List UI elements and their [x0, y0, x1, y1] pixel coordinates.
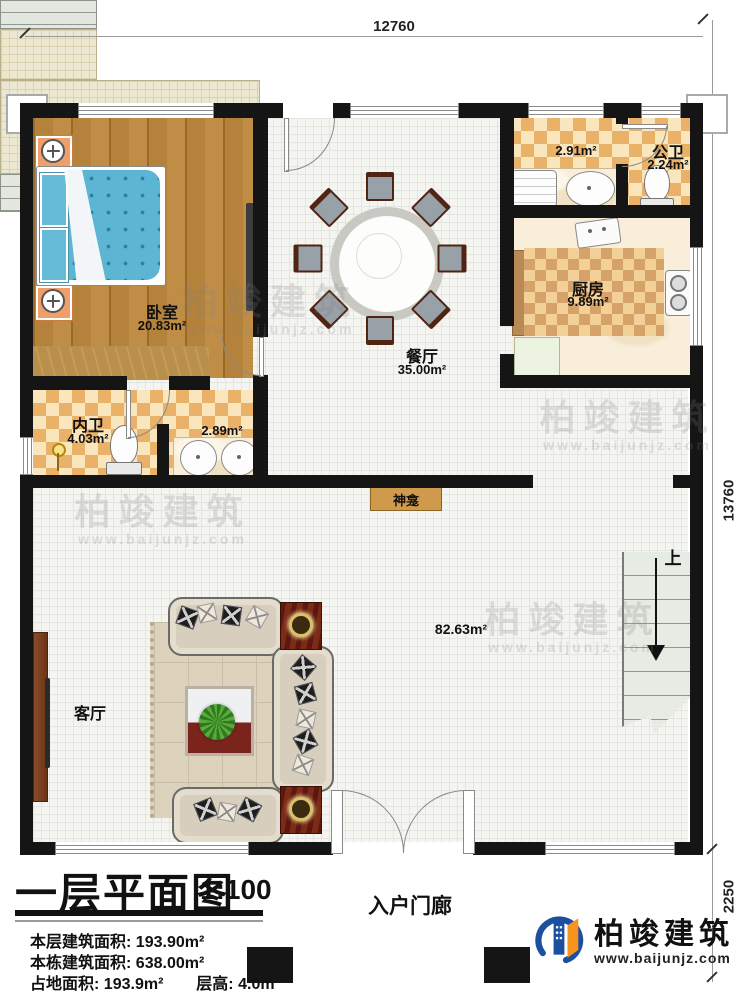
title-rule-thin: [15, 920, 263, 922]
dining-chair: [294, 245, 323, 273]
dining-table-inner: [356, 233, 402, 279]
stat-value: 193.9m²: [104, 976, 164, 993]
stairs-arrow-head: [647, 645, 665, 661]
burner: [670, 294, 687, 311]
sink-drain: [587, 186, 591, 190]
entry-porch-label: 入户门廊: [335, 890, 485, 920]
stairs-arrow-line: [655, 558, 657, 646]
lamp: [41, 139, 65, 163]
faucet: [602, 227, 606, 231]
drain-pipe: [57, 453, 59, 471]
brand-logo-text: 柏竣建筑 www.baijunjz.com: [594, 920, 734, 966]
brand-website: www.baijunjz.com: [594, 950, 734, 966]
window: [528, 103, 604, 118]
cushion: [295, 708, 316, 729]
medallion: [289, 613, 313, 637]
dim-line-right: [712, 20, 713, 982]
wardrobe: [33, 346, 210, 380]
wall-bedroom-right: [253, 118, 268, 337]
window: [545, 842, 675, 855]
dim-top-label: 12760: [362, 18, 426, 35]
title-rule-thick: [15, 910, 263, 916]
cushion: [221, 605, 242, 626]
window: [690, 247, 703, 346]
wall-kitchen-top: [500, 205, 690, 218]
burner: [670, 275, 687, 292]
wall-bedroom-right-lower: [253, 375, 268, 487]
dining-chair: [438, 245, 467, 273]
dining-area: 35.00m²: [388, 362, 456, 377]
medallion: [289, 797, 313, 821]
wall-kitchen-bottom: [500, 375, 690, 388]
window: [78, 103, 214, 118]
stairs-up-label: 上: [662, 544, 684, 569]
lamp: [41, 289, 65, 313]
wall-hall-top-stub: [673, 475, 690, 488]
dining-chair: [366, 316, 394, 345]
private-bath-area: 4.03m²: [58, 431, 118, 446]
living-label: 客厅: [66, 700, 114, 724]
wall-bedroom-bottom: [33, 376, 127, 390]
stat-footprint: 占地面积: 193.9m² 层高: 4.0m: [30, 970, 275, 994]
toilet-tank: [106, 462, 142, 475]
floorplan-page: { "plan": { "dimensions": { "top": "1276…: [0, 0, 750, 993]
window: [641, 103, 681, 118]
window: [350, 103, 459, 118]
window: [20, 437, 33, 475]
dim-right-label: 13760: [721, 472, 738, 530]
dining-chair: [366, 172, 394, 201]
fridge: [514, 337, 560, 377]
hall-area: 82.63m²: [428, 621, 494, 637]
wall-kitchen-left: [500, 218, 514, 326]
wall-laundry-left: [500, 118, 514, 208]
cushion: [196, 602, 217, 623]
vanity-area: 2.89m²: [194, 423, 250, 438]
wall-bath-divider: [157, 424, 169, 477]
porch-post: [484, 947, 530, 983]
brand-company: 柏竣建筑: [594, 920, 734, 950]
dim-line-top: [25, 36, 703, 37]
tv: [45, 678, 50, 768]
wall-pubbath-left: [616, 164, 628, 208]
door-gap: [283, 103, 333, 118]
stat-label: 占地面积:: [30, 976, 99, 993]
plan-scale: 1:100: [200, 874, 272, 906]
stat-label2: 层高:: [196, 976, 233, 993]
window: [55, 842, 249, 855]
cushion: [217, 802, 238, 823]
wall-exterior-right: [690, 103, 703, 855]
shrine-label: 神龛: [393, 490, 419, 509]
stat-value2: 4.0m: [238, 976, 274, 993]
dim-tick: [697, 13, 708, 24]
sink-drain: [196, 455, 200, 459]
wall-bedroom-bottom: [169, 376, 210, 390]
bed-pillow: [40, 228, 68, 282]
plant: [199, 704, 235, 740]
laundry-area: 2.91m²: [546, 143, 606, 158]
shrine: 神龛: [370, 487, 442, 511]
public-bath-area: 2.24m²: [640, 157, 696, 172]
kitchen-area: 9.89m²: [556, 294, 620, 309]
brand-logo-icon: [532, 912, 586, 973]
sink-drain: [237, 455, 241, 459]
bedroom-area: 20.83m²: [124, 318, 200, 333]
wall-hall-top: [33, 475, 533, 488]
faucet: [588, 229, 592, 233]
brand-logo: 柏竣建筑 www.baijunjz.com: [532, 912, 734, 973]
washing-machine: [511, 170, 557, 208]
bed-pillow: [40, 173, 68, 227]
wall-exterior-left: [20, 103, 33, 855]
top-porch-steps: [0, 0, 97, 29]
